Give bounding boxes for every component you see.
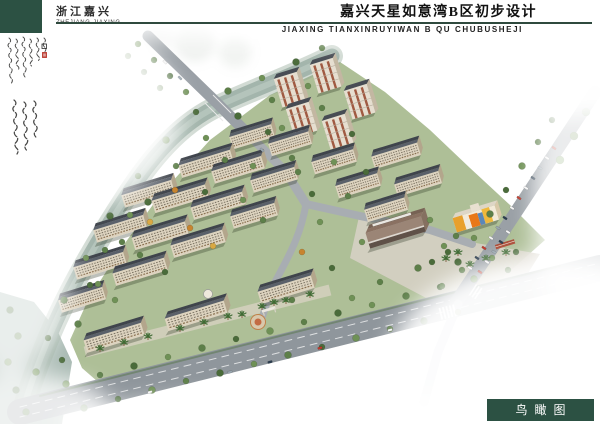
- calligraphy-annotation: [4, 36, 62, 170]
- region-name-cn: 浙江嘉兴: [56, 6, 121, 18]
- red-seal-carving: [43, 54, 46, 57]
- project-title-cn: 嘉兴天星如意湾B区初步设计: [282, 4, 537, 21]
- site-aerial-rendering: [0, 0, 600, 424]
- brand-color-block: [0, 0, 42, 33]
- view-label: 鸟瞰图: [487, 399, 594, 421]
- garden-pavilion: [204, 290, 213, 299]
- project-title: 嘉兴天星如意湾B区初步设计 JIAXING TIANXINRUYIWAN B Q…: [282, 4, 537, 34]
- project-title-en: JIAXING TIANXINRUYIWAN B QU CHUBUSHEJI: [282, 25, 523, 34]
- presentation-board: 浙江嘉兴 ZHEJIANG·JIAXING 嘉兴天星如意湾B区初步设计 JIAX…: [0, 0, 600, 424]
